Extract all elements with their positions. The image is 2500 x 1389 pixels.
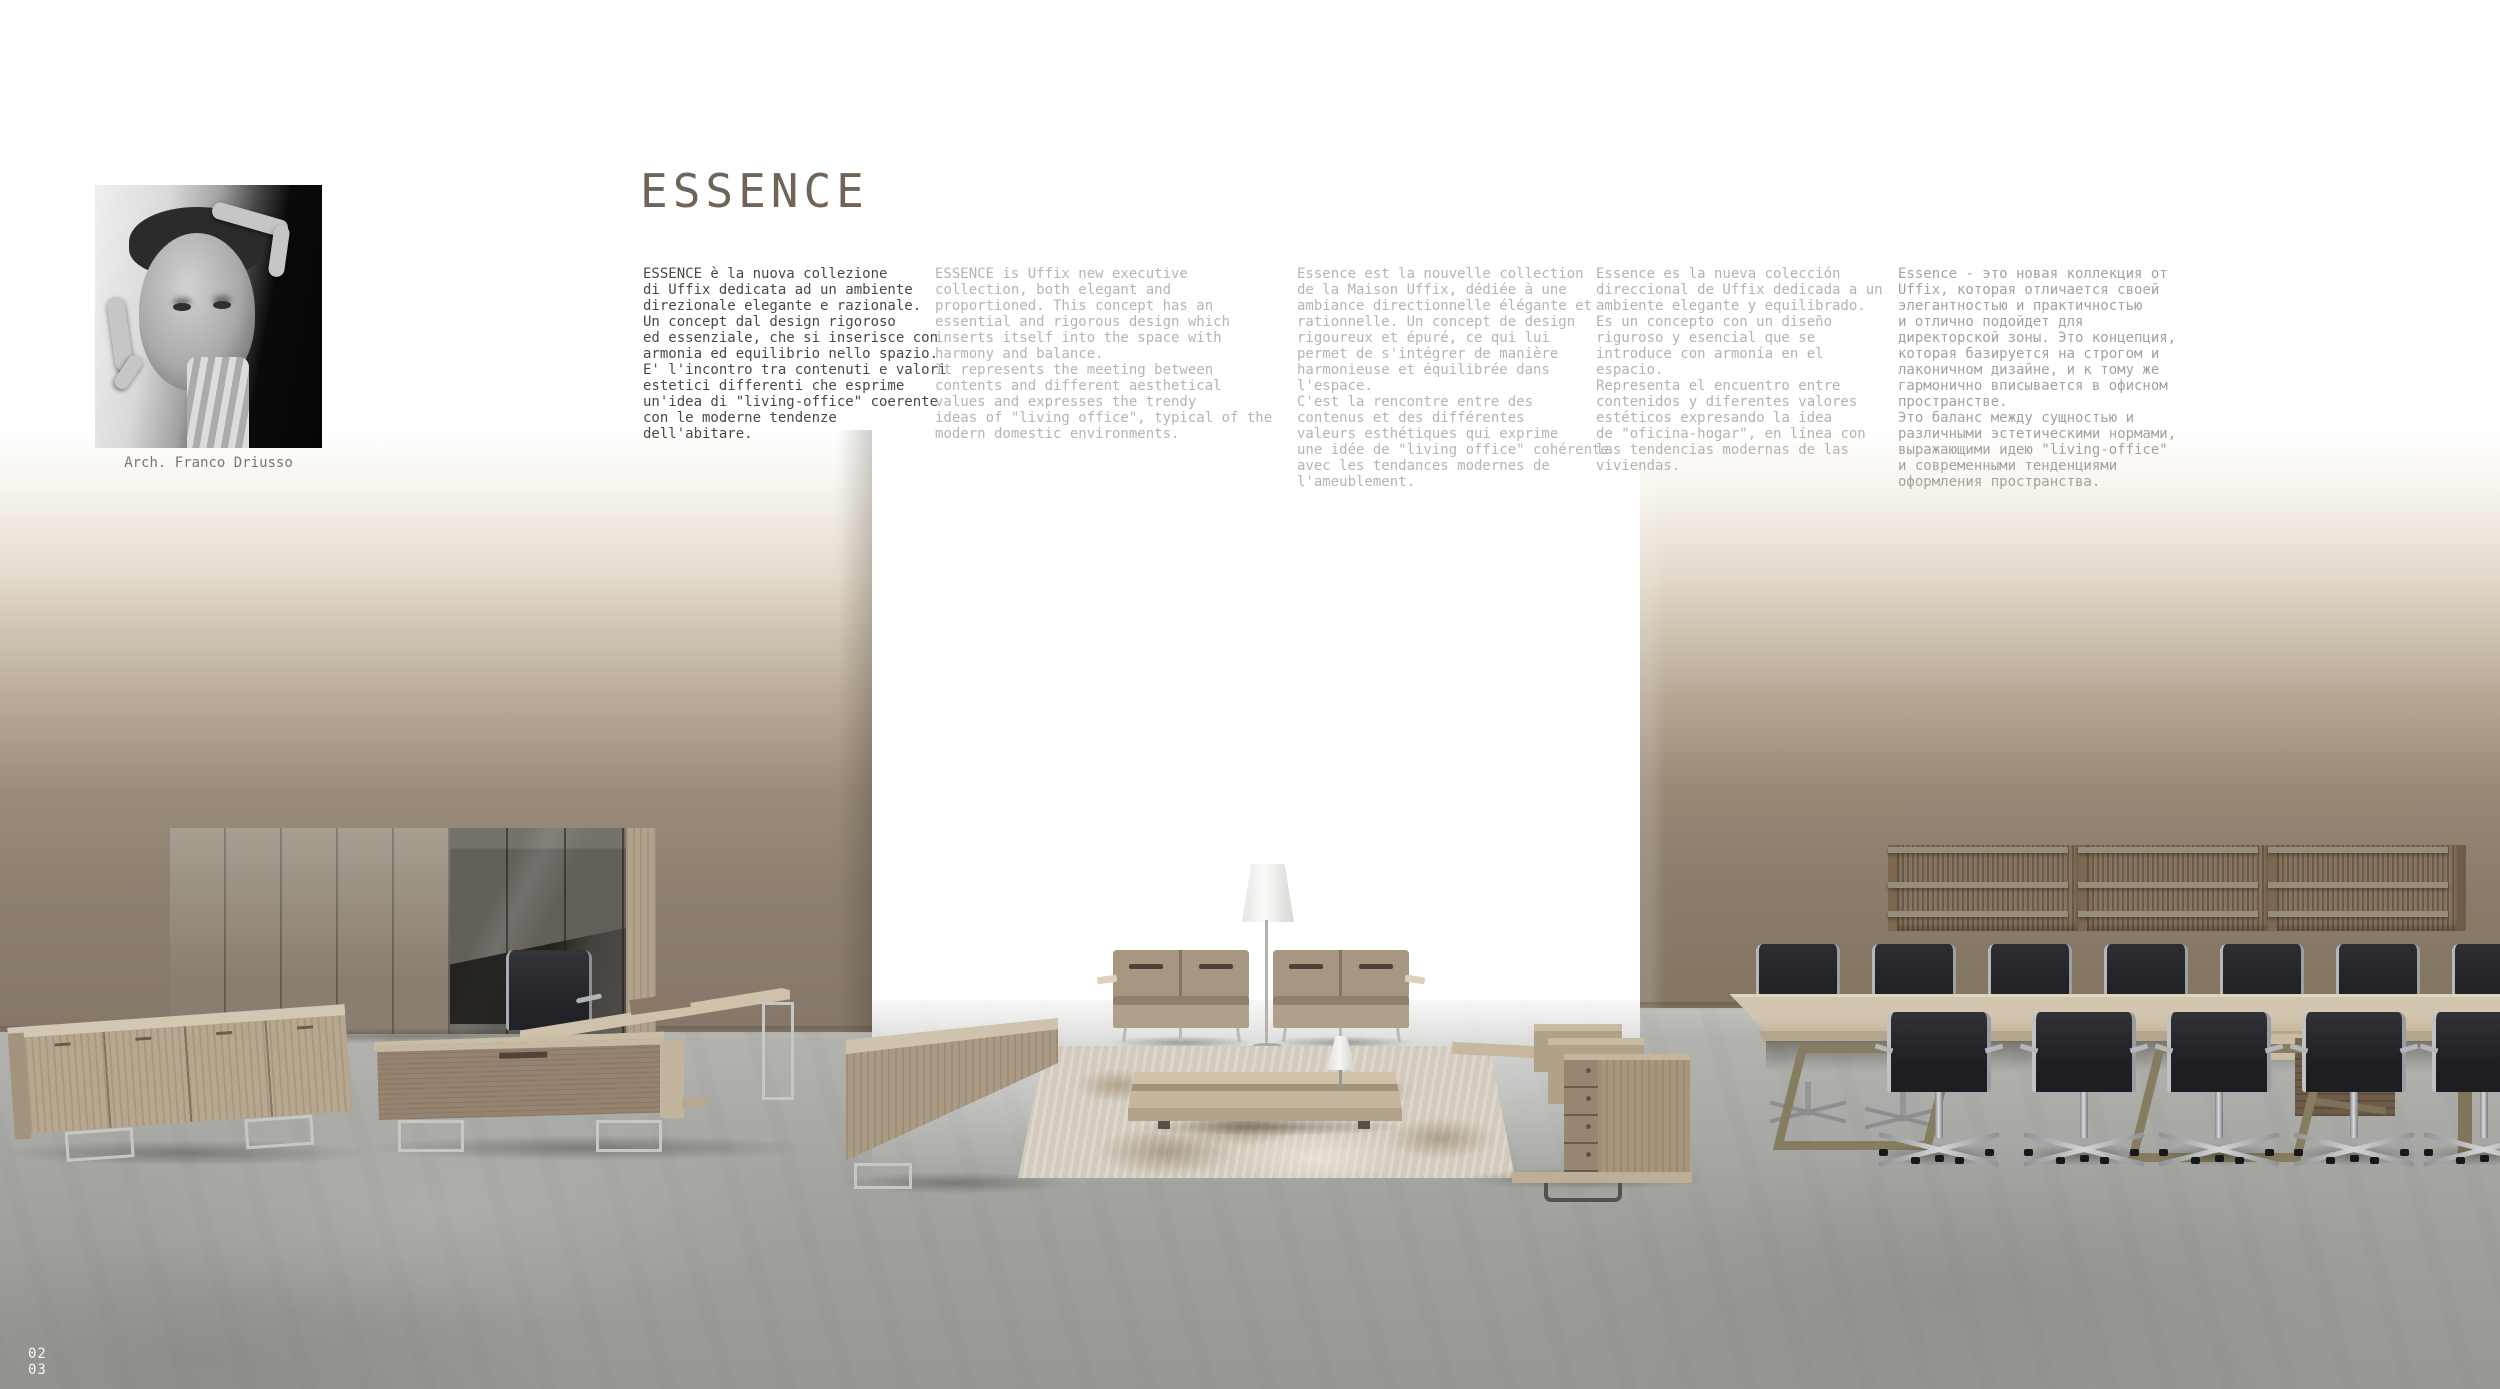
portrait-scarf (187, 357, 249, 448)
chair-casters (2480, 1155, 2489, 1162)
sofa-leg (1122, 1028, 1127, 1042)
intro-text-spanish: Essence es la nueva colección direcciona… (1596, 266, 1883, 474)
drawer-bench (1452, 1024, 1702, 1194)
drawer-handles (1586, 1068, 1591, 1073)
shelf-board (1888, 911, 2068, 917)
chair-casters (1935, 1155, 1944, 1162)
page-number-right: 03 (28, 1362, 47, 1378)
intro-text-russian: Essence - это новая коллекция от Uffix, … (1898, 266, 2176, 490)
sofa-stitch-slot (1199, 964, 1233, 969)
sofa-seat (1273, 996, 1409, 1028)
coffee-table-edge (1128, 1108, 1402, 1121)
sofa-stitch-slot (1129, 964, 1163, 969)
coffee-table-feet (1158, 1121, 1170, 1129)
bright-center-opening (872, 430, 1640, 1060)
bench-sled-foot (1544, 1183, 1622, 1202)
chair-back (2432, 1012, 2500, 1092)
bench-sled-foot (854, 1163, 912, 1189)
sofa-back (1273, 950, 1409, 996)
portrait-eye (173, 303, 191, 311)
conference-chair-near (2032, 1012, 2136, 1170)
architect-photo (95, 185, 322, 448)
drawer-unit-front (1564, 1054, 1690, 1172)
catalog-page: Arch. Franco Driusso ESSENCE ESSENCE è l… (0, 0, 2500, 1389)
desk-low-shelf (682, 1098, 708, 1107)
conference-chair-far (1988, 944, 2072, 1000)
sofa-leg (1236, 1028, 1241, 1042)
sideboard-sled-leg (65, 1127, 135, 1162)
table-lamp-stem (1339, 1070, 1342, 1090)
chair-casters (2350, 1155, 2359, 1162)
desk-groove (499, 1052, 547, 1059)
shelf-board (1888, 847, 2068, 853)
sofa-back (1113, 950, 1249, 996)
conference-chair-near (2302, 1012, 2406, 1170)
shelf-board (2268, 847, 2448, 853)
showroom-photo (0, 0, 2500, 1389)
chair-casters (2215, 1155, 2224, 1162)
shelf-board (2268, 911, 2448, 917)
chair-back (2167, 1012, 2271, 1092)
two-seat-sofa (1273, 950, 1409, 1042)
sofa-seat (1113, 996, 1249, 1028)
sideboard-sled-leg (244, 1115, 314, 1150)
conference-chair-far (1756, 944, 1840, 1000)
desk-end-panel (660, 1040, 684, 1118)
wall-shelf-module (2268, 845, 2466, 931)
intro-text-french: Essence est la nouvelle collection de la… (1297, 266, 1609, 490)
photo-caption: Arch. Franco Driusso (95, 455, 322, 471)
sofa-leg (1396, 1028, 1401, 1042)
conference-chair-near (1887, 1012, 1991, 1170)
wall-shelf-module (2078, 845, 2276, 931)
shelf-board (1888, 882, 2068, 888)
shelf-board (2078, 882, 2258, 888)
page-numbers: 02 03 (28, 1346, 47, 1378)
desk-chrome-leg (762, 1002, 794, 1100)
chair-back (2302, 1012, 2406, 1092)
chair-gas-lift (2215, 1092, 2223, 1138)
chair-back (506, 950, 592, 1030)
sofa-stitch-slot (1359, 964, 1393, 969)
two-seat-sofa (1113, 950, 1249, 1042)
coffee-table-top (1128, 1072, 1402, 1108)
wall-shelf-module (1888, 845, 2086, 931)
sideboard (6, 990, 362, 1189)
conference-chair-near (2167, 1012, 2271, 1170)
intro-text-english: ESSENCE is Uffix new executive collectio… (935, 266, 1272, 442)
conference-chair-far (2452, 944, 2500, 1000)
conference-chair-far (2336, 944, 2420, 1000)
conference-chair-far (2220, 944, 2304, 1000)
sofa-leg (1179, 1028, 1182, 1042)
sofa-stitch-slot (1289, 964, 1323, 969)
page-number-left: 02 (28, 1346, 47, 1362)
conference-chair-near (2432, 1012, 2500, 1170)
sofa-leg (1282, 1028, 1287, 1042)
shelf-board (2268, 882, 2448, 888)
drawer-stack (1564, 1060, 1598, 1172)
conference-chair-far (2104, 944, 2188, 1000)
chair-gas-lift (1935, 1092, 1943, 1138)
page-title: ESSENCE (640, 168, 869, 214)
chair-gas-lift (2480, 1092, 2488, 1138)
chair-back (1887, 1012, 1991, 1092)
chair-casters (2080, 1155, 2089, 1162)
desk-sled-leg (596, 1120, 662, 1152)
chair-gas-lift (2080, 1092, 2088, 1138)
portrait-eye (213, 301, 231, 309)
chair-gas-lift (2350, 1092, 2358, 1138)
low-bench (846, 1018, 1058, 1188)
floor-lamp-stem (1265, 920, 1268, 1046)
desk-front-panel (377, 1039, 664, 1120)
conference-chair-far (1872, 944, 1956, 1000)
intro-text-italian: ESSENCE è la nuova collezione di Uffix d… (643, 266, 946, 442)
shelf-board (2078, 911, 2258, 917)
desk-sled-leg (398, 1120, 464, 1152)
bench-board (1512, 1172, 1692, 1183)
chair-back (2032, 1012, 2136, 1092)
shelf-board (2078, 847, 2258, 853)
